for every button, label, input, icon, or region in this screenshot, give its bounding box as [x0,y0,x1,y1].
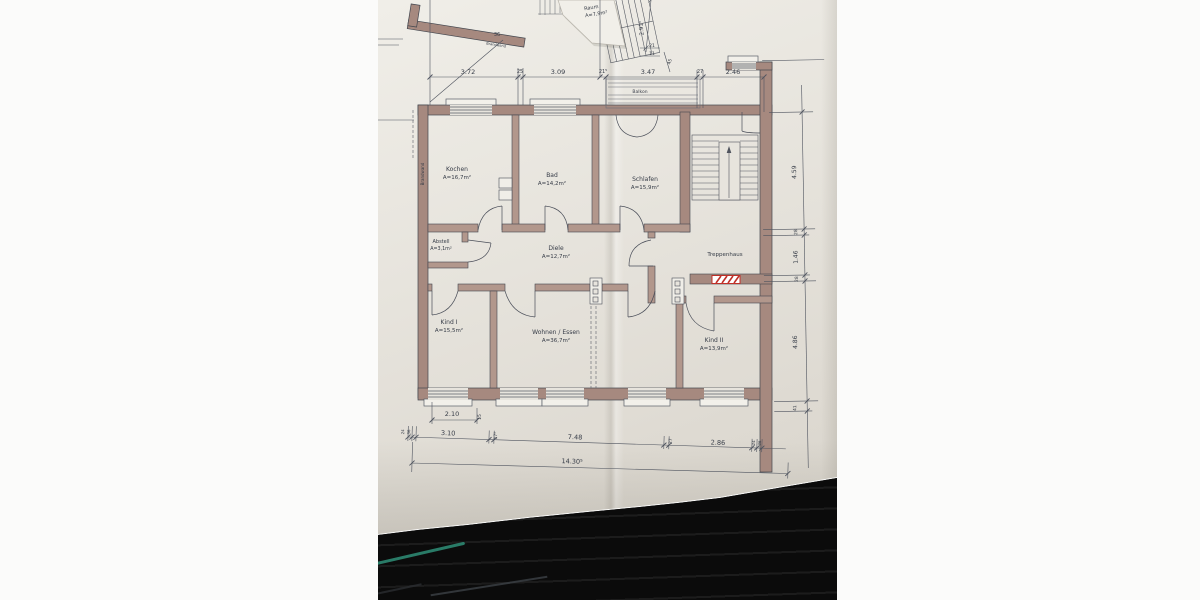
reflection-streak-teal [375,542,465,566]
reflection-streak-grey-2 [376,583,421,595]
dark-stair-surface [378,0,837,600]
reflection-streak-grey [431,576,548,596]
photo-of-floor-plan: Raum A=7,9m² [0,0,1200,600]
foreground [378,0,837,600]
